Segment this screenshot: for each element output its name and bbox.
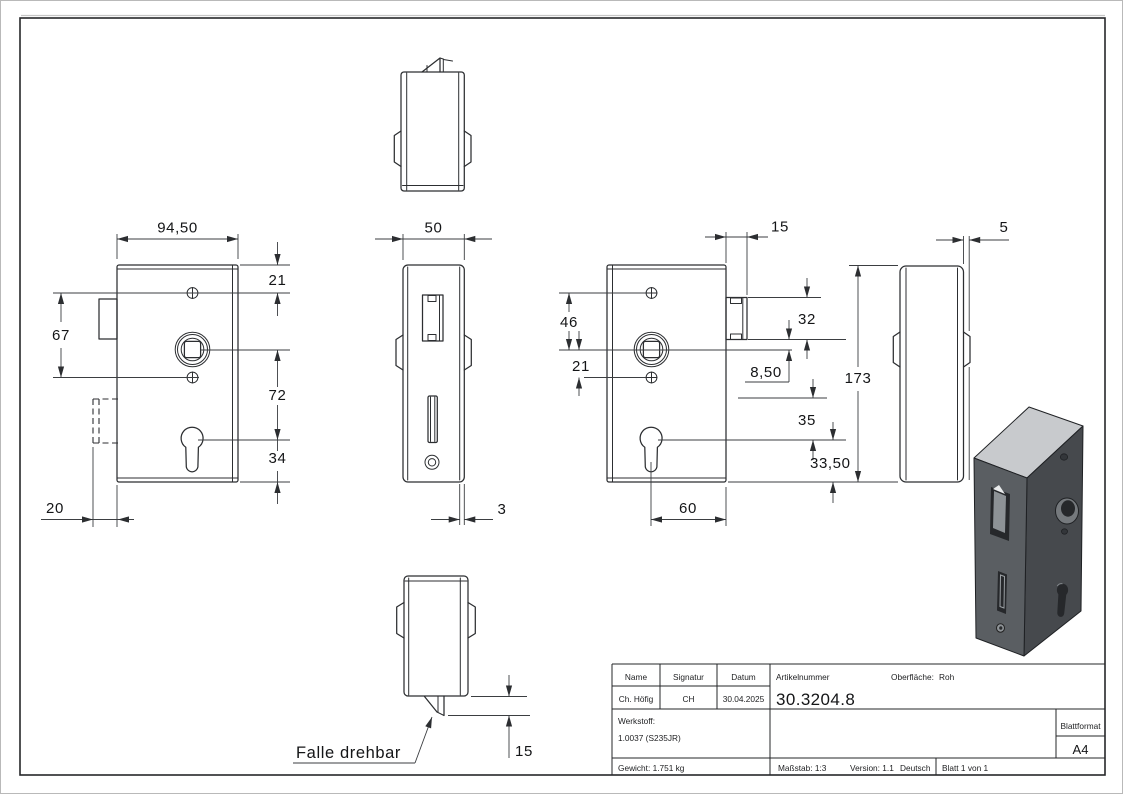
latch-opening [423, 295, 444, 341]
screw-hole-side [425, 455, 439, 469]
latch-back [726, 298, 747, 340]
drawing-sheet: 94,50 21 67 72 34 20 [0, 0, 1123, 794]
dim-label-latch-bottom: 15 [515, 743, 533, 760]
note-latch-rotatable: Falle drehbar [293, 717, 432, 763]
dim-case-height: 173 [845, 266, 898, 483]
back-view [607, 265, 747, 482]
iso-view [974, 407, 1083, 656]
titleblock-date-value: 30.04.2025 [723, 694, 765, 704]
latch-top [422, 58, 453, 72]
screw-hole [646, 288, 657, 299]
titleblock-material-label: Werkstoff: [618, 716, 655, 726]
iso-screw-front [997, 624, 1005, 632]
dim-label-case-height: 173 [845, 370, 872, 387]
dim-label-screw-spacing: 67 [52, 327, 70, 344]
top-view [394, 58, 471, 191]
latch-front [99, 299, 117, 339]
titleblock-sheetformat-value: A4 [1073, 742, 1089, 757]
titleblock-surface-label: Oberfläche: [891, 672, 934, 682]
tab-right [964, 332, 971, 367]
titleblock-sheet: Blatt 1 von 1 [942, 763, 989, 773]
titleblock-surface-value: Roh [939, 672, 955, 682]
dim-label-spindle-to-screw: 21 [572, 358, 590, 375]
dim-label-cover-thickness: 3 [498, 501, 507, 518]
key-slot [428, 396, 437, 443]
sheet-frame [20, 16, 1105, 776]
keyhole [181, 427, 203, 472]
iso-screw-mid [1062, 529, 1068, 534]
side-view [396, 265, 471, 482]
dim-spindle-to-keyhole: 72 [198, 350, 290, 440]
dim-label-screw-to-spindle: 46 [560, 314, 578, 331]
latch-note-label: Falle drehbar [296, 744, 401, 762]
dim-label-top-to-screw: 21 [269, 272, 287, 289]
dim-label-spindle-offset: 8,50 [750, 364, 782, 381]
dim-label-keyhole-to-bottom: 34 [269, 450, 287, 467]
dim-latch-depth: 20 [41, 447, 134, 527]
titleblock-signature-value: CH [683, 694, 695, 704]
tab-left [397, 603, 404, 639]
titleblock-date-label: Datum [731, 672, 756, 682]
dim-label-latch-top-width: 15 [771, 219, 789, 236]
tab-right [464, 131, 471, 167]
tab-left [396, 335, 403, 370]
dim-top-to-screw: 21 [53, 242, 290, 316]
dim-cover-thickness: 3 [431, 484, 506, 525]
dim-label-plate-thickness: 5 [1000, 219, 1009, 236]
iso-screw-top [1060, 454, 1067, 460]
tab-right [468, 603, 475, 639]
spindle-hole [634, 332, 669, 367]
technical-drawing: 94,50 21 67 72 34 20 [1, 1, 1123, 794]
dim-label-keyhole-to-bottom-right: 33,50 [810, 455, 851, 472]
dim-spindle-to-screw: 21 [572, 331, 646, 396]
spindle-hole [175, 332, 210, 367]
dim-label-front-width: 94,50 [157, 220, 198, 237]
dim-slot-to-keyhole: 35 [658, 379, 846, 460]
titleblock-sheetformat-label: Blattformat [1060, 721, 1101, 731]
titleblock-article-number: 30.3204.8 [776, 690, 855, 709]
titleblock-material-value: 1.0037 (S235JR) [618, 733, 681, 743]
tab-left [893, 332, 900, 367]
titleblock-name-value: Ch. Höfig [619, 694, 654, 704]
dim-latch-height: 32 [748, 278, 846, 359]
dim-label-case-width: 50 [425, 220, 443, 237]
screw-hole [646, 372, 657, 383]
dim-latch-top-width: 15 [705, 219, 789, 296]
dim-keyhole-to-bottom-right: 33,50 [728, 422, 897, 503]
latch-dashed-extended [93, 399, 118, 443]
dim-keyhole-to-bottom: 34 [240, 440, 290, 504]
titleblock-language: Deutsch [900, 763, 931, 773]
dim-front-width: 94,50 [117, 220, 238, 260]
right-side-view [893, 266, 970, 482]
titleblock-signature-label: Signatur [673, 672, 704, 682]
titleblock-scale: Maßstab: 1:3 [778, 763, 827, 773]
dim-screw-to-spindle: 46 [559, 293, 792, 350]
dim-label-spindle-to-keyhole: 72 [269, 387, 287, 404]
dim-label-slot-to-keyhole: 35 [798, 412, 816, 429]
tab-right [464, 335, 471, 370]
dim-label-latch-height: 32 [798, 311, 816, 328]
dim-label-latch-depth: 20 [46, 500, 64, 517]
titleblock-weight: Gewicht: 1.751 kg [618, 763, 685, 773]
titleblock-version: Version: 1.1 [850, 763, 894, 773]
titleblock-name-label: Name [625, 672, 648, 682]
latch-bottom [425, 696, 445, 716]
titleblock-article-label: Artikelnummer [776, 672, 830, 682]
iso-cylinder-collar [1056, 498, 1079, 524]
dim-label-keyhole-offset: 60 [679, 500, 697, 517]
iso-key-slot [997, 571, 1007, 614]
dim-keyhole-offset: 60 [651, 462, 726, 526]
tab-left [394, 131, 401, 167]
bottom-view [397, 576, 476, 716]
dim-screw-spacing: 67 [52, 293, 199, 378]
iso-latch-slot [990, 485, 1010, 541]
title-block: Name Signatur Datum Artikelnummer Oberfl… [612, 664, 1105, 775]
front-view [93, 265, 238, 482]
dim-spindle-offset: 8,50 [745, 320, 789, 382]
dim-case-width: 50 [375, 220, 492, 261]
